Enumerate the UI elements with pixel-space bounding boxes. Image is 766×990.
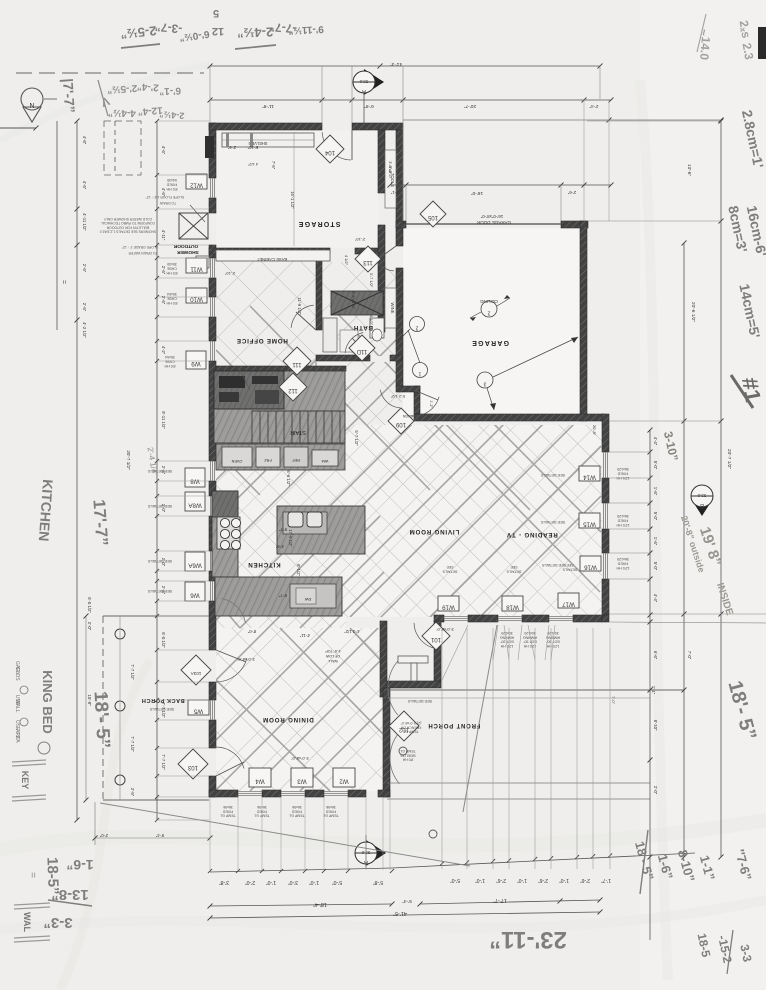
svg-text:FRZ: FRZ (264, 458, 272, 462)
svg-text:4'-11”: 4'-11” (299, 633, 310, 638)
svg-text:53.0: 53.0 (359, 79, 368, 84)
svg-text:5: 5 (213, 7, 219, 19)
svg-text:2'-10”: 2'-10” (354, 237, 365, 242)
svg-text:4 1/2”: 4 1/2” (247, 162, 258, 167)
svg-text:W3: W3 (297, 778, 307, 785)
svg-text:1'-1”: 1'-1” (651, 686, 656, 695)
svg-text:4 1/2”: 4 1/2” (344, 255, 349, 266)
svg-text:20'-7 1/2”: 20'-7 1/2” (726, 449, 732, 470)
svg-text:TEMP GL: TEMP GL (403, 730, 418, 734)
svg-text:30x54: 30x54 (165, 355, 175, 359)
svg-text:12'0 HH: 12'0 HH (616, 566, 629, 570)
svg-text:5'-7 1/2”: 5'-7 1/2” (354, 430, 359, 446)
svg-text:SEE: SEE (566, 563, 574, 567)
svg-text:2'-5½”: 2'-5½” (107, 82, 138, 95)
svg-text:1'-2”: 1'-2” (429, 400, 433, 408)
svg-text:3-3”: 3-3” (43, 914, 72, 931)
svg-text:20'-8”: 20'-8” (592, 425, 597, 436)
svg-text:SEE: SEE (510, 565, 518, 569)
svg-text:SEE DETAILS: SEE DETAILS (147, 589, 172, 593)
svg-text:11'-8”: 11'-8” (262, 103, 274, 109)
svg-text:1'-0”: 1'-0” (475, 877, 485, 883)
svg-text:OVEN: OVEN (231, 459, 242, 463)
svg-text:2'-6”: 2'-6” (161, 266, 166, 275)
svg-text:2'-6”: 2'-6” (580, 877, 590, 883)
svg-text:4'-6”: 4'-6” (161, 188, 166, 197)
svg-text:|7'-7”: |7'-7” (60, 78, 78, 114)
svg-text:18-5”: 18-5” (43, 857, 61, 895)
svg-text:2'-4”: 2'-4” (589, 104, 598, 109)
svg-text:OUTDOOR: OUTDOOR (173, 243, 198, 249)
svg-text:3'-0”x8'-0”: 3'-0”x8'-0” (236, 657, 254, 662)
svg-text:COLD WATER SHOWER ONLY: COLD WATER SHOWER ONLY (103, 217, 152, 221)
svg-text:5'-10”: 5'-10” (247, 145, 258, 150)
svg-text:W14: W14 (583, 474, 596, 481)
svg-text:5'-0”: 5'-0” (653, 461, 658, 470)
svg-text:6'-1”: 6'-1” (159, 85, 181, 97)
svg-text:B: B (700, 502, 704, 508)
svg-text:4'-11 1/2”: 4'-11 1/2” (82, 213, 87, 231)
svg-text:KING BED: KING BED (40, 670, 55, 734)
svg-text:AWNING: AWNING (500, 635, 515, 639)
svg-text:4 1/2”: 4 1/2” (369, 315, 374, 326)
svg-text:2'-6”: 2'-6” (227, 145, 236, 150)
svg-text:4'-8”: 4'-8” (82, 136, 87, 145)
svg-text:11D: 11D (356, 348, 367, 354)
svg-text:W6A: W6A (187, 562, 201, 569)
svg-text:2'-6”: 2'-6” (82, 303, 87, 312)
svg-text:CLOS: CLOS (14, 667, 20, 681)
svg-text:54x30: 54x30 (167, 178, 177, 182)
svg-text:ALIGN: ALIGN (402, 414, 413, 418)
svg-text:112: 112 (288, 387, 298, 393)
svg-text:1'-0”: 1'-0” (266, 879, 276, 885)
svg-text:41'-3”: 41'-3” (390, 61, 403, 67)
svg-text:2'-1”: 2'-1” (390, 190, 399, 195)
svg-text:CASE: CASE (167, 266, 177, 270)
svg-text:STAIR: STAIR (290, 429, 306, 435)
svg-text:W16: W16 (584, 564, 597, 571)
svg-text:W2: W2 (339, 778, 349, 785)
svg-text:109: 109 (395, 421, 406, 427)
svg-text:W6: W6 (190, 592, 200, 599)
svg-text:WALL: WALL (14, 699, 20, 713)
svg-text:1'-6”: 1'-6” (653, 537, 658, 546)
svg-text:101: 101 (430, 636, 441, 642)
svg-text:10'-6”: 10'-6” (686, 164, 692, 177)
svg-text:12-4”: 12-4” (137, 104, 163, 117)
svg-text:AREA: AREA (14, 729, 20, 743)
svg-text:SHOWER: SHOWER (177, 249, 199, 255)
svg-text:3'-0”x8'-0”: 3'-0”x8'-0” (435, 627, 453, 632)
svg-text:-3-7”: -3-7” (154, 20, 183, 37)
svg-text:18'-4”: 18'-4” (313, 901, 327, 907)
svg-text:2'-6”: 2'-6” (567, 190, 576, 195)
svg-text:7'-7 1/2”: 7'-7 1/2” (161, 754, 166, 770)
svg-text:7'-7 1/2”: 7'-7 1/2” (130, 664, 135, 680)
svg-text:1'-0”: 1'-0” (309, 879, 319, 885)
svg-text:7'-0”: 7'-0” (687, 651, 692, 660)
svg-text:DETAILS: DETAILS (562, 567, 577, 571)
svg-text:113: 113 (363, 259, 373, 265)
svg-text:4'-4”: 4'-4” (653, 437, 658, 446)
svg-text:16'-0”x8'-0”: 16'-0”x8'-0” (480, 214, 503, 219)
svg-text:2'-0”: 2'-0” (653, 786, 658, 795)
svg-text:WM: WM (322, 459, 329, 463)
svg-text:4'-2”: 4'-2” (161, 346, 166, 355)
svg-text:3'-0”x8'-0”: 3'-0”x8'-0” (290, 756, 308, 761)
svg-text:9'-11½”: 9'-11½” (288, 23, 324, 36)
svg-text:W19: W19 (442, 604, 455, 611)
svg-text:1: 1 (418, 371, 421, 377)
svg-text:4'-6”: 4'-6” (275, 544, 284, 549)
svg-text:2-4½”: 2-4½” (159, 109, 185, 121)
svg-text:FIXED: FIXED (617, 561, 628, 565)
svg-text:GARAGE DOOR: GARAGE DOOR (476, 220, 511, 225)
svg-text:BULLETIN FOR OUTDOOR: BULLETIN FOR OUTDOOR (106, 225, 149, 229)
svg-text:5'-0”: 5'-0” (332, 879, 342, 885)
svg-text:SLOPE GRADE 1” : 12”: SLOPE GRADE 1” : 12” (122, 245, 158, 249)
svg-text:1'-7”: 1'-7” (601, 877, 611, 883)
svg-text:TEMP GL: TEMP GL (220, 814, 235, 818)
svg-text:9'-11 1/2”: 9'-11 1/2” (161, 411, 166, 429)
svg-text:103: 103 (187, 764, 198, 770)
svg-text:FIXED: FIXED (291, 809, 302, 813)
svg-text:1'-6”: 1'-6” (653, 487, 658, 496)
svg-text:30x54: 30x54 (167, 292, 177, 296)
svg-text:W11: W11 (190, 266, 203, 273)
svg-text:20'-7”: 20'-7” (464, 103, 477, 109)
svg-text:CONFORM TO PMBO TECHNICAL: CONFORM TO PMBO TECHNICAL (101, 221, 155, 225)
svg-text:CEILING: CEILING (480, 299, 499, 304)
svg-text:TO DRAIN: TO DRAIN (159, 201, 176, 205)
svg-text:DW: DW (304, 597, 311, 602)
svg-text:SEE DETAILS: SEE DETAILS (407, 699, 432, 703)
svg-text:5'-0”: 5'-0” (450, 877, 460, 883)
svg-text:2.3: 2.3 (740, 42, 757, 61)
svg-text:4'-2 1/2”: 4'-2 1/2” (82, 322, 87, 338)
svg-text:104: 104 (324, 149, 335, 155)
svg-text:30x30: 30x30 (167, 262, 177, 266)
svg-text:8'0 HH: 8'0 HH (164, 364, 175, 368)
svg-text:KEY: KEY (20, 771, 30, 790)
svg-text:2'-0”: 2'-0” (99, 833, 108, 838)
svg-text:2'-6”: 2'-6” (161, 296, 166, 305)
svg-text:=: = (27, 872, 38, 878)
svg-text:41'-5”: 41'-5” (393, 910, 407, 916)
svg-text:4'-4”: 4'-4” (653, 594, 658, 603)
svg-text:TEMP GL: TEMP GL (289, 814, 304, 818)
svg-text:5'-4”: 5'-4” (402, 898, 412, 904)
svg-text:FRONT PORCH: FRONT PORCH (428, 722, 481, 728)
svg-text:2: 2 (487, 310, 490, 316)
svg-text:TEMP GL: TEMP GL (400, 749, 415, 753)
svg-text:2'-0”: 2'-0” (87, 622, 92, 631)
svg-text:FIXED: FIXED (222, 809, 233, 813)
svg-text:W18: W18 (506, 604, 519, 611)
svg-text:HOME OFFICE: HOME OFFICE (236, 337, 288, 344)
svg-text:WALL: WALL (328, 659, 338, 663)
svg-text:3'-8”: 3'-8” (219, 879, 229, 885)
svg-text:4'-6”: 4'-6” (161, 146, 166, 155)
svg-text:SEE DETAILS: SEE DETAILS (147, 504, 172, 508)
svg-text:2'-5”: 2'-5” (130, 788, 135, 797)
svg-text:16'-1 1/2”: 16'-1 1/2” (290, 191, 295, 209)
svg-text:20'-7 1/2”: 20'-7 1/2” (126, 450, 131, 470)
svg-text:8'-10”: 8'-10” (653, 720, 658, 731)
svg-text:KITCHEN: KITCHEN (247, 561, 280, 568)
svg-text:6'-0 1/2”: 6'-0 1/2” (87, 597, 92, 613)
svg-text:3'-2”: 3'-2” (388, 166, 393, 175)
svg-text:5'-2 1/2”: 5'-2 1/2” (390, 394, 405, 399)
svg-text:W12: W12 (190, 182, 203, 189)
svg-text:18'- 5”: 18'- 5” (90, 691, 114, 749)
svg-text:4-4½”: 4-4½” (108, 107, 136, 118)
svg-text:W8A: W8A (187, 502, 201, 509)
svg-text:READING - TV: READING - TV (506, 531, 558, 538)
svg-text:2'-6”: 2'-6” (496, 877, 506, 883)
svg-text:1'-0”: 1'-0” (559, 877, 569, 883)
svg-text:11'-9 1/2”: 11'-9 1/2” (297, 297, 302, 315)
svg-text:BOT 30”: BOT 30” (546, 640, 560, 644)
svg-text:12'0 HH: 12'0 HH (616, 523, 629, 527)
svg-text:8'0 HH: 8'0 HH (402, 758, 413, 762)
svg-text:111: 111 (292, 361, 302, 367)
svg-text:FIXED: FIXED (166, 182, 177, 186)
svg-text:3'-7 1/2”: 3'-7 1/2” (369, 273, 374, 288)
svg-text:(2) 3'-0”x8'-0”: (2) 3'-0”x8'-0” (400, 721, 422, 725)
svg-text:2'-0”: 2'-0” (161, 558, 166, 567)
svg-text:2'-6”: 2'-6” (538, 877, 548, 883)
svg-text:8'0 HH: 8'0 HH (166, 271, 177, 275)
svg-text:TEMP GL: TEMP GL (323, 814, 338, 818)
svg-text:OF LOW: OF LOW (325, 654, 340, 658)
svg-text:SEE DETAILS: SEE DETAILS (147, 559, 172, 563)
svg-text:8'-1/2”: 8'-1/2” (296, 564, 301, 576)
svg-text:30x120: 30x120 (547, 631, 559, 635)
svg-text:GARAGE: GARAGE (471, 339, 509, 346)
svg-text:7'-5”: 7'-5” (271, 161, 276, 170)
svg-text:SEE DETAILS: SEE DETAILS (540, 520, 565, 524)
svg-text:8'-0”: 8'-0” (247, 629, 256, 634)
svg-text:36x96: 36x96 (292, 805, 302, 809)
svg-text:WAL: WAL (22, 912, 32, 932)
svg-text:36x120: 36x120 (617, 557, 629, 561)
svg-text:2'-4”: 2'-4” (137, 80, 159, 92)
svg-text:FIXED: FIXED (617, 471, 628, 475)
svg-text:9'-4”: 9'-4” (155, 833, 164, 838)
svg-text:17'-9 1/2”: 17'-9 1/2” (288, 529, 293, 547)
svg-text:5'-0”: 5'-0” (653, 562, 658, 571)
svg-text:53.0: 53.0 (697, 493, 706, 498)
svg-text:WINE: WINE (390, 303, 395, 314)
svg-text:9'-7”: 9'-7” (278, 527, 287, 532)
svg-text:W4: W4 (255, 778, 265, 785)
svg-text:17'-7”: 17'-7” (89, 499, 111, 547)
svg-text:6'-6 1/2”: 6'-6 1/2” (286, 470, 291, 486)
svg-text:STORAGE: STORAGE (298, 220, 341, 227)
svg-text:5'-0”: 5'-0” (653, 512, 658, 521)
svg-text:8'0 HH: 8'0 HH (166, 301, 177, 305)
svg-text:4'-6” TOP: 4'-6” TOP (325, 649, 341, 653)
svg-text:7'-7 1/2”: 7'-7 1/2” (161, 702, 166, 718)
svg-text:LIVING ROOM: LIVING ROOM (409, 528, 459, 535)
svg-text:6'-6”: 6'-6” (653, 651, 658, 660)
svg-text:SEE DETAILS: SEE DETAILS (540, 473, 565, 477)
svg-text:W15: W15 (583, 521, 596, 528)
svg-text:16'-0”: 16'-0” (471, 190, 484, 196)
svg-text:3'-0”: 3'-0” (288, 879, 298, 885)
svg-text:8'0 HH: 8'0 HH (166, 187, 177, 191)
svg-text:4'-6”: 4'-6” (82, 181, 87, 190)
svg-text:5'-8”: 5'-8” (373, 879, 383, 885)
svg-text:17'-7”: 17'-7” (493, 897, 507, 903)
svg-text:12'0 HH: 12'0 HH (523, 644, 536, 648)
svg-text:~: ~ (697, 28, 712, 36)
svg-text:W17: W17 (562, 601, 575, 608)
svg-text:36x120: 36x120 (617, 467, 629, 471)
svg-text:BASE CABINET: BASE CABINET (256, 257, 287, 262)
svg-text:CASE: CASE (165, 359, 175, 363)
svg-text:103A: 103A (190, 671, 202, 676)
svg-text:=: = (60, 280, 67, 284)
svg-text:30x120: 30x120 (501, 631, 513, 635)
svg-text:6'-8”: 6'-8” (364, 103, 374, 109)
svg-text:2'-6”: 2'-6” (161, 586, 166, 595)
svg-text:36x96: 36x96 (223, 805, 233, 809)
svg-text:2'-6”: 2'-6” (82, 264, 87, 273)
svg-text:1-6”: 1-6” (66, 857, 93, 873)
svg-text:DETAILS: DETAILS (442, 569, 457, 573)
svg-text:SEE DETAILS: SEE DETAILS (541, 563, 566, 567)
svg-text:20'-6 1/2”: 20'-6 1/2” (690, 302, 696, 323)
svg-text:2'-6”: 2'-6” (161, 466, 166, 475)
svg-text:12: 12 (212, 25, 224, 37)
svg-text:2'-10”: 2'-10” (224, 271, 235, 276)
svg-text:4'-11”: 4'-11” (161, 230, 166, 241)
svg-text:SEE: SEE (446, 565, 454, 569)
svg-text:DETAILS: DETAILS (506, 569, 521, 573)
svg-text:4'-3 1/2”: 4'-3 1/2” (344, 629, 360, 634)
svg-text:7'-7 1/2”: 7'-7 1/2” (130, 736, 135, 752)
svg-text:3: 3 (483, 381, 486, 387)
svg-text:FRENCH DR: FRENCH DR (400, 725, 421, 729)
svg-text:BOT 30”: BOT 30” (523, 640, 537, 644)
svg-text:DINING ROOM: DINING ROOM (262, 716, 313, 723)
svg-text:36x96: 36x96 (326, 805, 336, 809)
svg-text:9'-7”: 9'-7” (278, 593, 287, 598)
svg-text:2-4½”: 2-4½” (237, 24, 274, 40)
svg-text:2'-6”x8'-0”: 2'-6”x8'-0” (351, 291, 356, 309)
svg-text:7'-0”: 7'-0” (611, 696, 616, 705)
svg-text:1'-0”: 1'-0” (517, 877, 527, 883)
svg-text:FIXED: FIXED (617, 518, 628, 522)
svg-text:2'-0”: 2'-0” (245, 879, 255, 885)
svg-text:W5: W5 (193, 708, 203, 715)
svg-text:2'-0”: 2'-0” (161, 504, 166, 513)
svg-text:36x120: 36x120 (617, 514, 629, 518)
svg-text:105: 105 (427, 214, 438, 220)
svg-text:6'-0 1/2”: 6'-0 1/2” (161, 632, 166, 648)
svg-text:FIXED: FIXED (325, 809, 336, 813)
svg-text:SHOWERS SEE DETAILS 1,2,3/A2.: SHOWERS SEE DETAILS 1,2,3/A2.0 (100, 230, 157, 234)
svg-text:TO DRAIN WATER: TO DRAIN WATER (128, 251, 157, 255)
svg-text:2: 2 (415, 325, 418, 331)
svg-text:REF: REF (292, 458, 300, 462)
svg-text:23'-11”: 23'-11” (489, 926, 567, 953)
